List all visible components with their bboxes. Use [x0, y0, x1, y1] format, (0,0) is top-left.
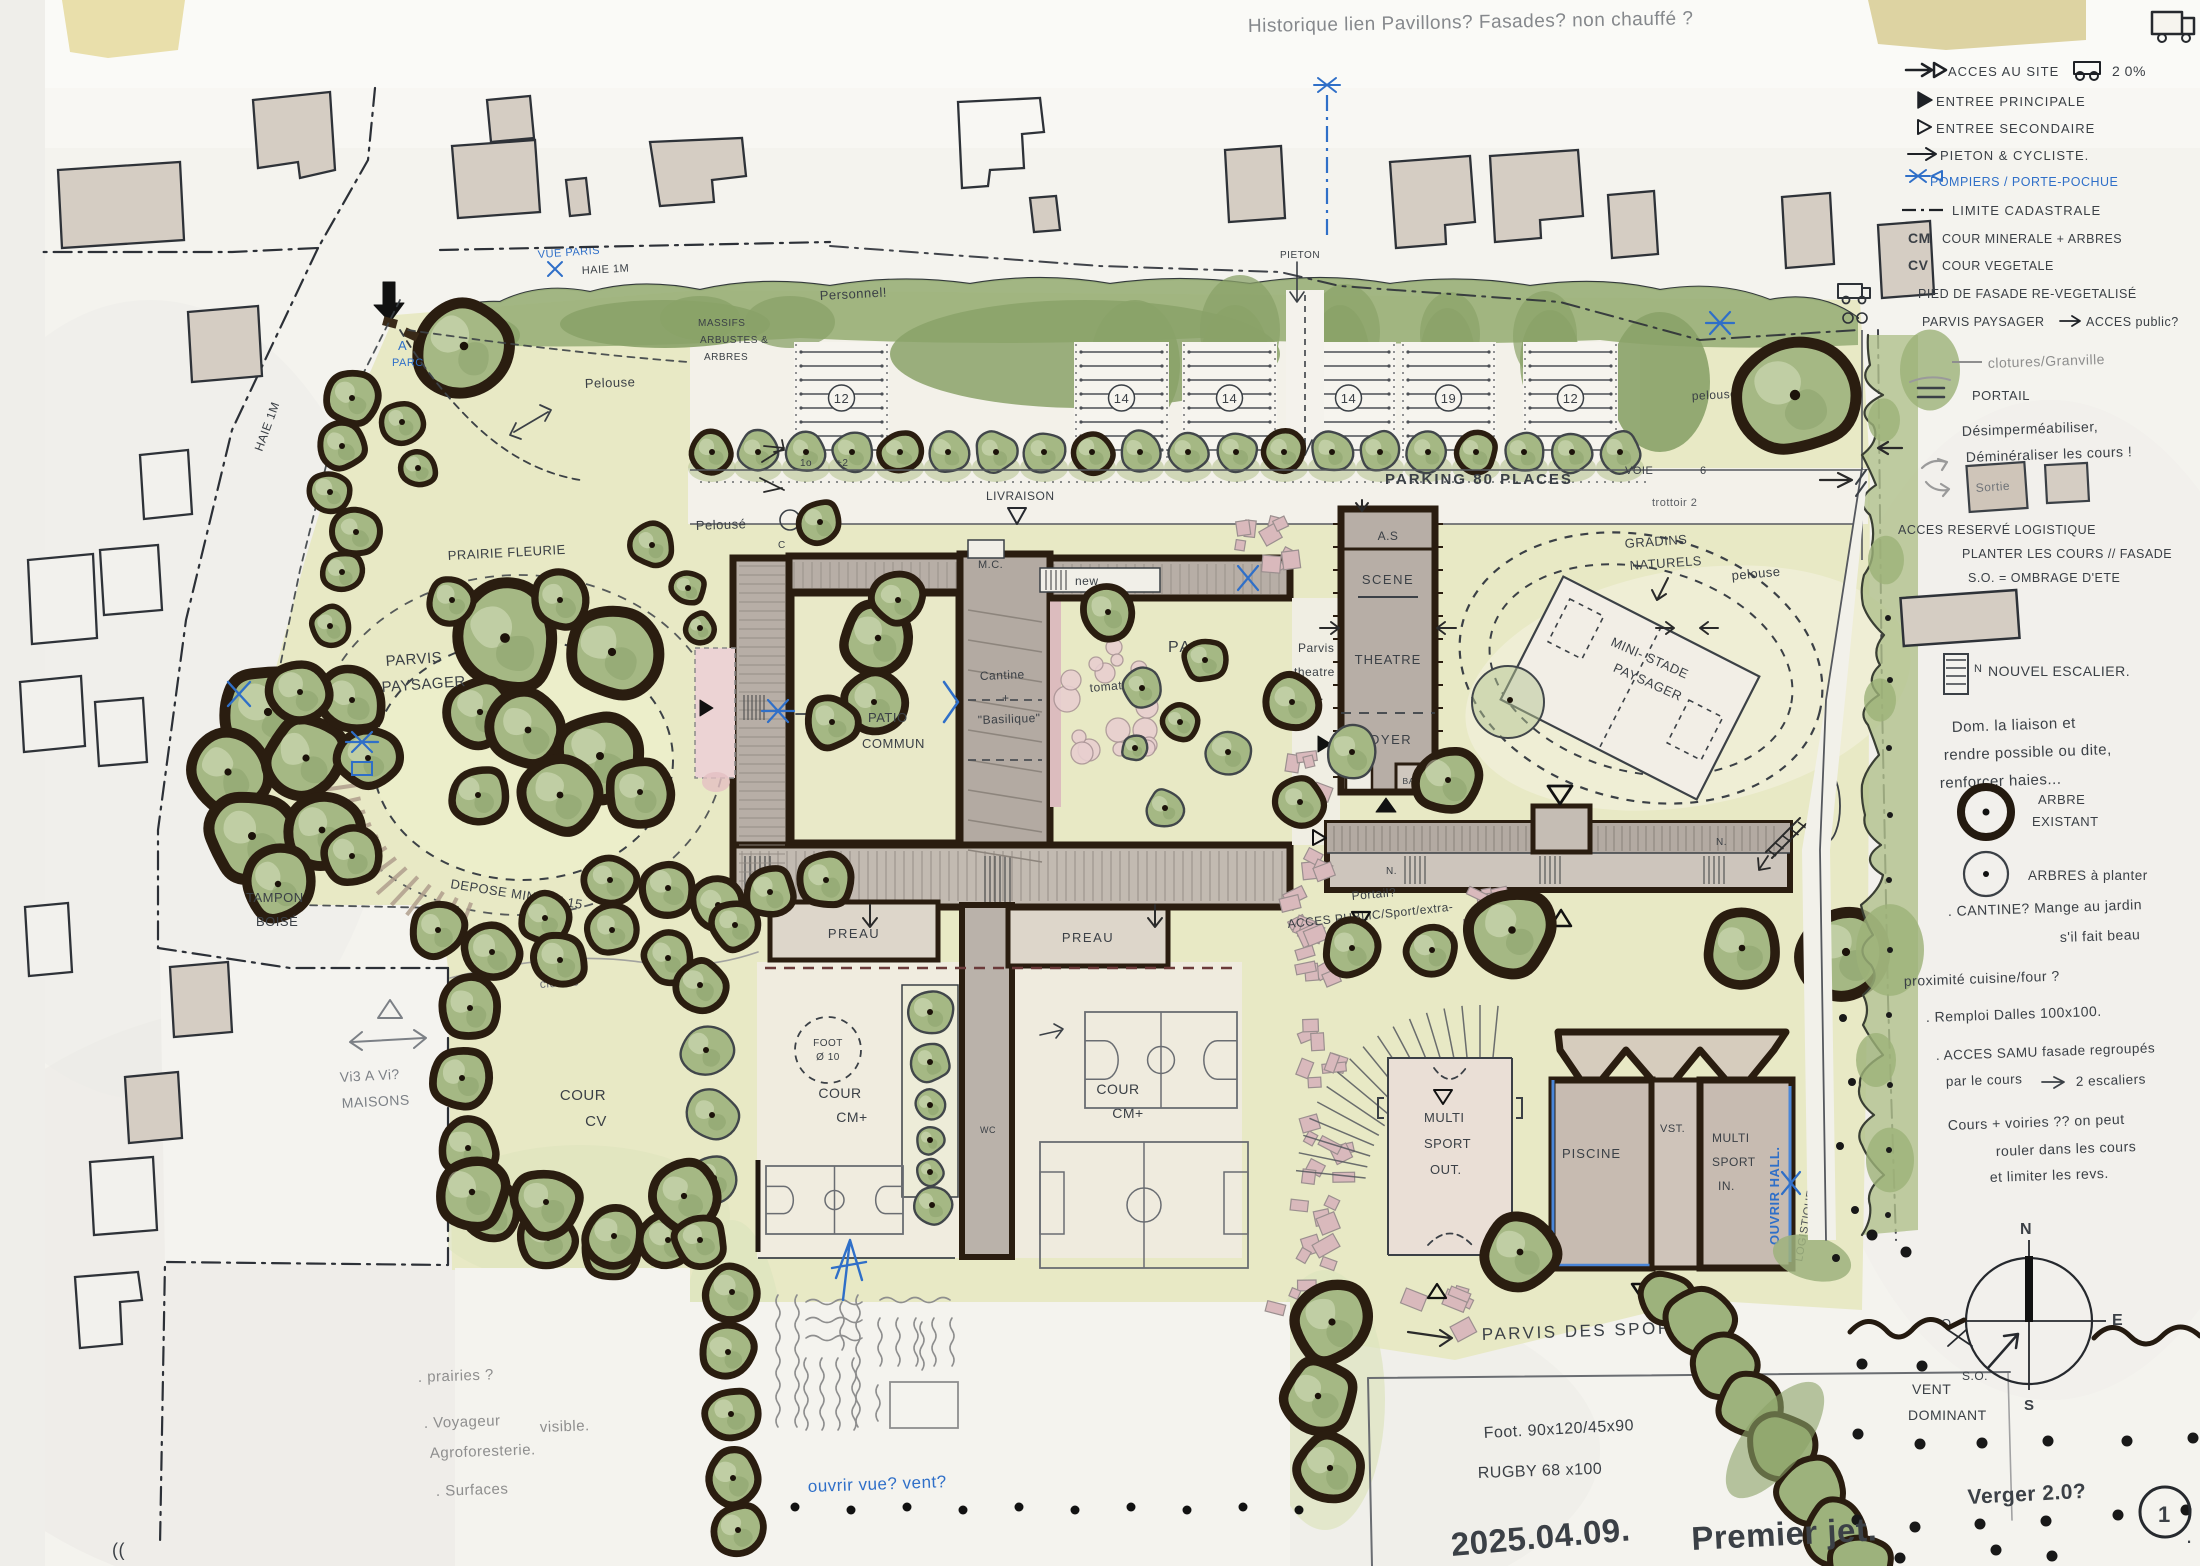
svg-text:PREAU: PREAU — [828, 926, 880, 941]
svg-text:Cantine: Cantine — [980, 667, 1025, 683]
svg-text:Pelouse: Pelouse — [585, 374, 636, 391]
svg-text:LIVRAISON: LIVRAISON — [986, 489, 1055, 503]
svg-text:14: 14 — [1114, 391, 1129, 406]
svg-text:VENT: VENT — [1912, 1381, 1951, 1397]
svg-text:Parvis: Parvis — [1298, 641, 1334, 655]
svg-text:THEATRE: THEATRE — [1355, 652, 1422, 667]
svg-text:PLANTER LES COURS // FASADE: PLANTER LES COURS // FASADE — [1962, 547, 2172, 561]
svg-text:12: 12 — [834, 391, 849, 406]
svg-text:PARKING 80 PLACES: PARKING 80 PLACES — [1385, 471, 1573, 488]
svg-text:ACCES AU SITE: ACCES AU SITE — [1948, 64, 2059, 79]
svg-text:COUR: COUR — [818, 1085, 861, 1101]
svg-text:HAIE 1M: HAIE 1M — [582, 263, 630, 277]
svg-text:IN.: IN. — [1718, 1179, 1735, 1193]
svg-text:MASSIFS: MASSIFS — [698, 318, 745, 329]
svg-text:1o: 1o — [800, 458, 812, 469]
svg-text:PIED DE FASADE RE-VEGETALISÉ: PIED DE FASADE RE-VEGETALISÉ — [1918, 286, 2137, 301]
svg-text:Pelousé: Pelousé — [696, 516, 747, 533]
svg-text:ARBRE: ARBRE — [2038, 792, 2085, 807]
svg-text:12: 12 — [1563, 391, 1578, 406]
svg-text:PATIO: PATIO — [868, 710, 908, 725]
svg-text:N.: N. — [1386, 866, 1397, 877]
svg-text:6: 6 — [1700, 465, 1707, 477]
svg-text:PORTAIL: PORTAIL — [1972, 388, 2030, 403]
svg-text:N: N — [2020, 1221, 2032, 1238]
svg-text:19: 19 — [1441, 391, 1456, 406]
svg-text:CV: CV — [585, 1113, 607, 1130]
svg-text:14: 14 — [1222, 391, 1237, 406]
svg-text:ACCES RESERVÉ LOGISTIQUE: ACCES RESERVÉ LOGISTIQUE — [1898, 522, 2096, 537]
svg-text:POMPIERS / PORTE-POCHUE: POMPIERS / PORTE-POCHUE — [1930, 175, 2118, 189]
svg-text:SPORT: SPORT — [1424, 1136, 1471, 1151]
svg-text:CM+: CM+ — [836, 1109, 867, 1125]
svg-text:BOISÉ: BOISÉ — [256, 914, 298, 929]
svg-text:trottoir 2: trottoir 2 — [1652, 497, 1697, 509]
svg-text:PREAU: PREAU — [1062, 930, 1114, 945]
svg-text:COUR: COUR — [1096, 1081, 1139, 1097]
svg-text:OUT.: OUT. — [1430, 1162, 1462, 1177]
svg-text:s'il fait beau: s'il fait beau — [2060, 926, 2141, 945]
svg-text:NOUVEL ESCALIER.: NOUVEL ESCALIER. — [1988, 663, 2130, 679]
svg-text:SPORT: SPORT — [1712, 1155, 1756, 1169]
svg-text:+2: +2 — [836, 458, 848, 469]
svg-text:M.C.: M.C. — [978, 559, 1003, 571]
svg-text:ENTREE SECONDAIRE: ENTREE SECONDAIRE — [1936, 121, 2095, 136]
svg-text:PARC: PARC — [392, 357, 424, 369]
svg-text:+: + — [1002, 691, 1010, 705]
svg-text:Sortie: Sortie — [1975, 479, 2010, 495]
svg-text:ARBRES à planter: ARBRES à planter — [2028, 868, 2148, 883]
svg-text:EXISTANT: EXISTANT — [2032, 814, 2099, 829]
svg-text:ACCES public?: ACCES public? — [2086, 315, 2179, 329]
svg-text:. prairies ?: . prairies ? — [418, 1366, 495, 1386]
svg-text:S.O.: S.O. — [1962, 1369, 1988, 1383]
svg-text:par le cours: par le cours — [1946, 1071, 2023, 1089]
svg-text:VST.: VST. — [1660, 1123, 1685, 1135]
svg-text:DOMINANT: DOMINANT — [1908, 1407, 1987, 1423]
svg-text:WC: WC — [980, 1125, 996, 1135]
svg-text:VOIE: VOIE — [1625, 465, 1653, 477]
svg-text:. Voyageur: . Voyageur — [424, 1412, 501, 1432]
svg-text:ARBUSTES &: ARBUSTES & — [700, 335, 768, 346]
svg-text:ENTREE PRINCIPALE: ENTREE PRINCIPALE — [1936, 94, 2086, 109]
svg-text:14: 14 — [1341, 391, 1356, 406]
svg-text:C: C — [778, 540, 786, 551]
svg-text:2 escaliers: 2 escaliers — [2076, 1072, 2147, 1089]
svg-text:Vi3 A Vi?: Vi3 A Vi? — [339, 1066, 400, 1085]
svg-text:((: (( — [112, 1540, 125, 1560]
svg-text:PIETON & CYCLISTE.: PIETON & CYCLISTE. — [1940, 148, 2089, 163]
svg-text:SCENE: SCENE — [1362, 572, 1414, 587]
svg-text:FOOT: FOOT — [813, 1038, 843, 1049]
svg-text:. Surfaces: . Surfaces — [436, 1480, 509, 1500]
svg-text:LIMITE CADASTRALE: LIMITE CADASTRALE — [1952, 203, 2101, 218]
svg-text:COMMUN: COMMUN — [862, 736, 925, 751]
svg-text:MULTI: MULTI — [1712, 1131, 1750, 1145]
svg-text:A: A — [398, 338, 407, 353]
svg-text:1: 1 — [2158, 1502, 2171, 1527]
svg-text:N.: N. — [1716, 837, 1727, 848]
svg-text:CM: CM — [1908, 230, 1931, 246]
svg-text:2 0%: 2 0% — [2112, 63, 2146, 79]
svg-text:PIETON: PIETON — [1280, 250, 1320, 261]
svg-text:PISCINE: PISCINE — [1562, 1146, 1621, 1161]
svg-text:OUVRIR HALL.: OUVRIR HALL. — [1767, 1147, 1782, 1245]
svg-text:CV: CV — [1908, 257, 1929, 273]
svg-text:TAMPON: TAMPON — [246, 890, 304, 905]
svg-text:COUR MINERALE + ARBRES: COUR MINERALE + ARBRES — [1942, 232, 2122, 246]
svg-text:pelouse: pelouse — [1691, 387, 1737, 403]
svg-text:COUR: COUR — [560, 1087, 606, 1104]
svg-text:Ø 10: Ø 10 — [816, 1052, 840, 1063]
svg-text:N: N — [1974, 663, 1982, 675]
svg-text:PARVIS PAYSAGER: PARVIS PAYSAGER — [1922, 315, 2045, 329]
svg-text:S: S — [2024, 1397, 2035, 1414]
svg-text:MULTI: MULTI — [1424, 1110, 1465, 1125]
svg-text:A.S: A.S — [1378, 529, 1399, 543]
svg-text:ARBRES: ARBRES — [704, 352, 748, 363]
svg-text:S.O. = OMBRAGE D'ETE: S.O. = OMBRAGE D'ETE — [1968, 571, 2120, 585]
svg-text:"Basilique": "Basilique" — [978, 711, 1041, 727]
svg-text:visible.: visible. — [540, 1417, 590, 1436]
svg-text:COUR VEGETALE: COUR VEGETALE — [1942, 259, 2054, 273]
